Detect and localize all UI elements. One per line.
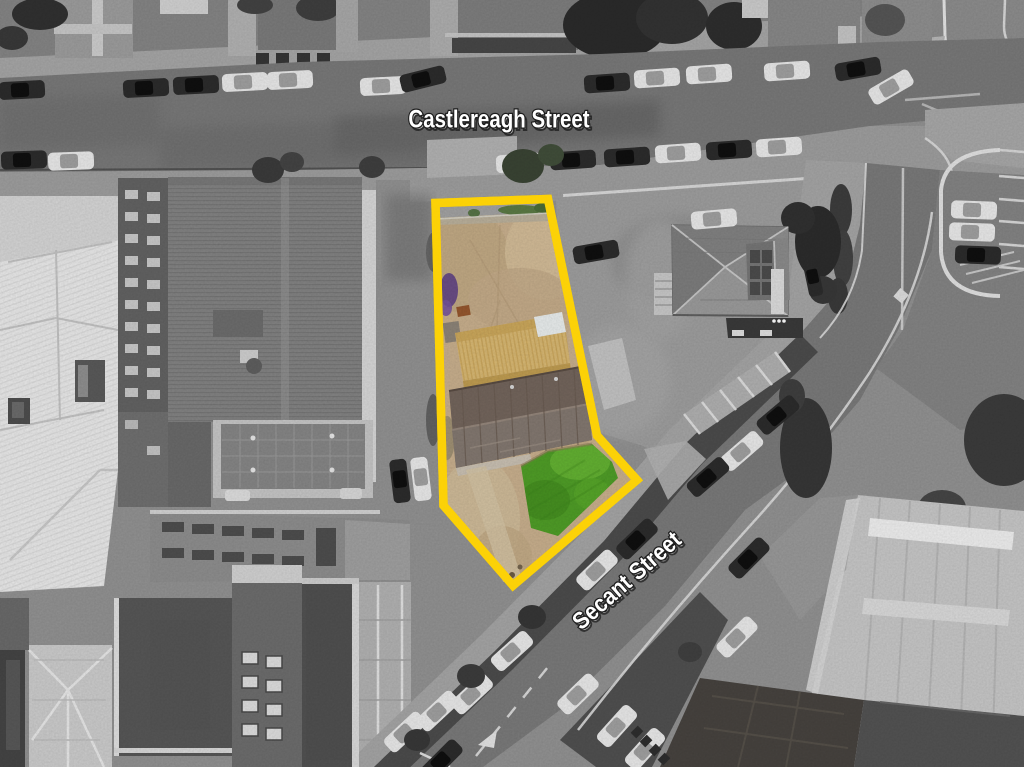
svg-text:Castlereagh Street: Castlereagh Street <box>408 105 589 133</box>
